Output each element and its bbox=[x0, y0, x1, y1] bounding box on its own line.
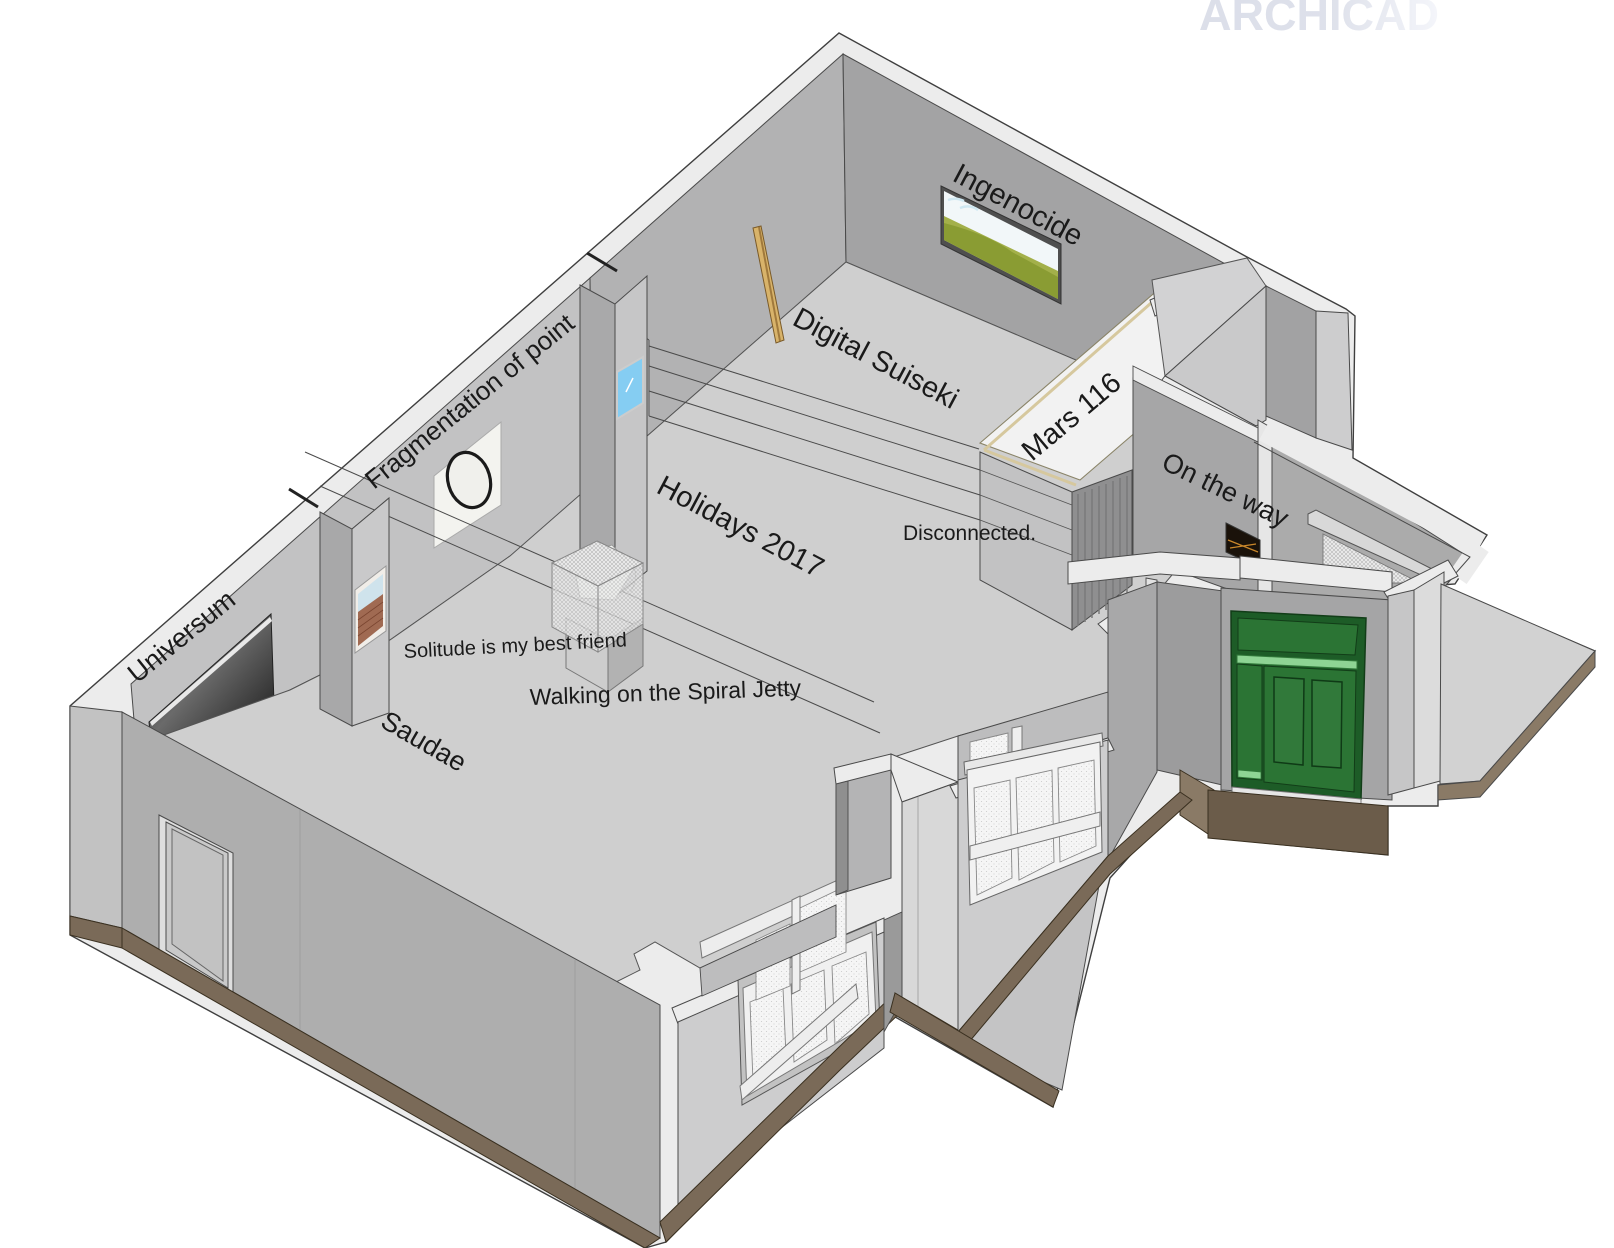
svg-text:ARCHICAD: ARCHICAD bbox=[1199, 0, 1439, 40]
svg-text:Disconnected.: Disconnected. bbox=[903, 522, 1036, 545]
